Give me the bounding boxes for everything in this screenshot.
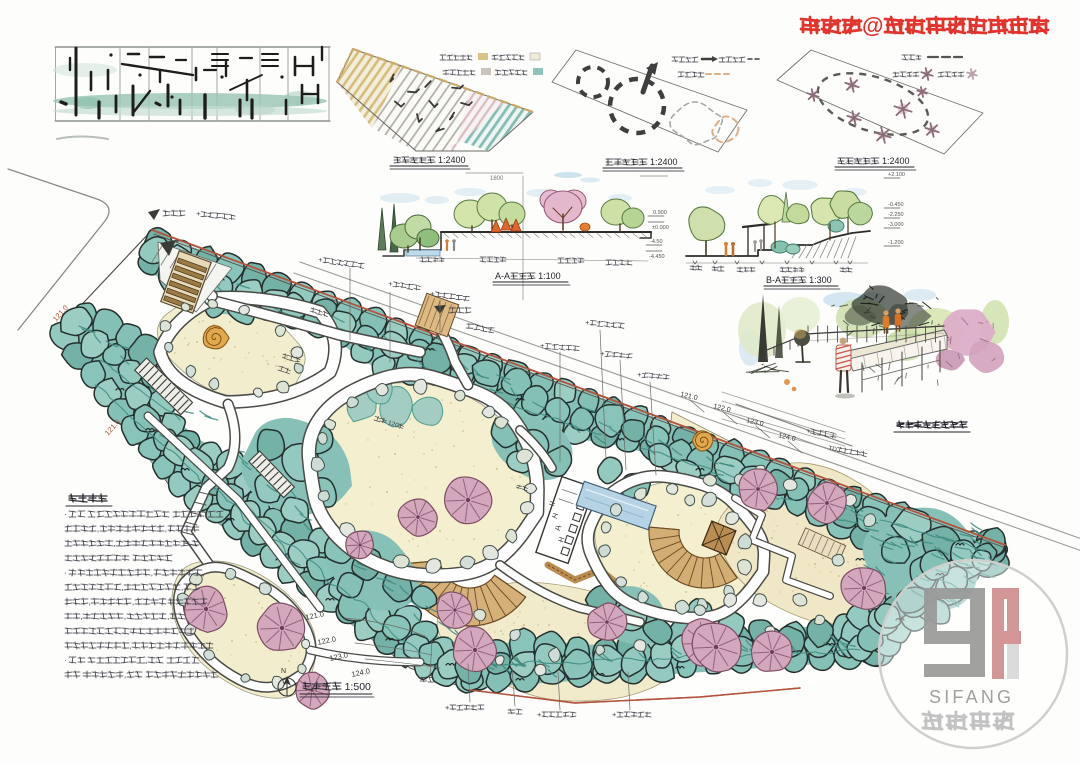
- svg-text:+: +: [612, 710, 617, 719]
- svg-text:0.900: 0.900: [653, 210, 667, 216]
- svg-text:,: ,: [124, 611, 126, 621]
- svg-text:·: ·: [64, 509, 67, 519]
- svg-text:-0.450: -0.450: [888, 202, 904, 208]
- svg-text:SIFANG: SIFANG: [929, 687, 1014, 707]
- svg-text:1:500: 1:500: [345, 681, 371, 693]
- svg-text:,: ,: [205, 509, 207, 519]
- svg-text:+2.100: +2.100: [888, 172, 905, 178]
- svg-text:,: ,: [145, 655, 147, 665]
- svg-text:B-A: B-A: [766, 275, 781, 285]
- svg-text:N: N: [281, 668, 286, 675]
- svg-text:,: ,: [132, 597, 134, 607]
- svg-text:-2.250: -2.250: [888, 212, 904, 218]
- svg-text:,: ,: [181, 582, 183, 592]
- svg-text:,: ,: [202, 567, 204, 577]
- svg-text:·: ·: [64, 655, 67, 665]
- svg-text:,: ,: [124, 670, 126, 680]
- svg-text:-1.200: -1.200: [888, 240, 904, 246]
- svg-text:,: ,: [165, 524, 167, 534]
- svg-text:A-A: A-A: [495, 271, 510, 281]
- svg-text:1800: 1800: [490, 176, 504, 182]
- svg-text:,: ,: [80, 611, 82, 621]
- svg-text:1:2400: 1:2400: [650, 157, 678, 167]
- svg-text:,: ,: [189, 538, 191, 548]
- svg-text:-4.450: -4.450: [649, 254, 665, 260]
- svg-text:-4.50: -4.50: [650, 239, 663, 245]
- svg-text:·: ·: [64, 567, 67, 577]
- svg-text:+: +: [445, 703, 450, 712]
- svg-text:-3.000: -3.000: [888, 222, 904, 228]
- svg-text:1:100: 1:100: [538, 271, 561, 281]
- svg-text:±0.000: ±0.000: [652, 225, 669, 231]
- svg-text:,: ,: [113, 538, 115, 548]
- svg-text:,: ,: [89, 597, 91, 607]
- svg-text:,: ,: [97, 524, 99, 534]
- svg-text:1:2400: 1:2400: [882, 156, 910, 166]
- svg-text:+: +: [537, 710, 542, 719]
- svg-text:1:2400: 1:2400: [438, 155, 466, 165]
- svg-text:,: ,: [151, 567, 153, 577]
- svg-text:,: ,: [167, 611, 169, 621]
- svg-text:,: ,: [121, 582, 123, 592]
- svg-text:@: @: [862, 13, 883, 38]
- svg-text:1:300: 1:300: [809, 275, 832, 285]
- svg-text:,: ,: [129, 640, 131, 650]
